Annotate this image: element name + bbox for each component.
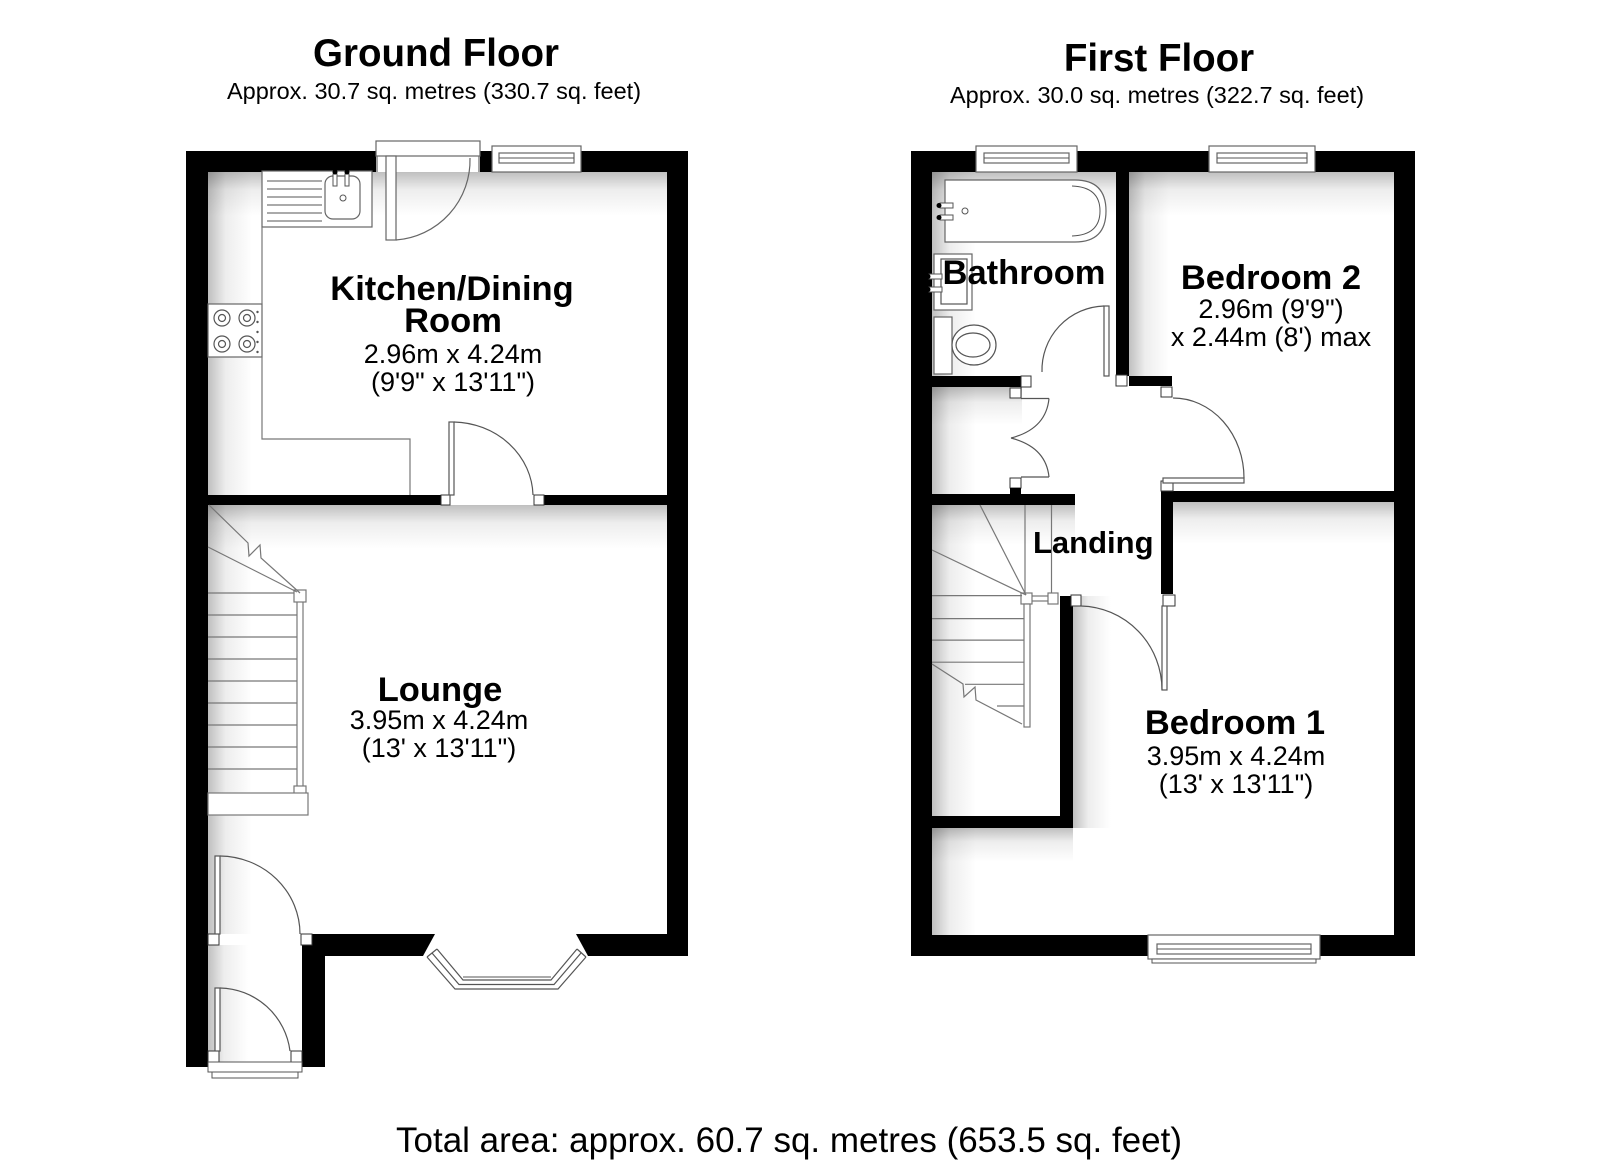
svg-text:(9'9" x 13'11"): (9'9" x 13'11") (371, 367, 535, 397)
svg-text:Total area: approx. 60.7 sq. m: Total area: approx. 60.7 sq. metres (653… (396, 1121, 1182, 1160)
svg-text:(13' x 13'11"): (13' x 13'11") (1159, 769, 1313, 799)
svg-text:3.95m x 4.24m: 3.95m x 4.24m (1147, 741, 1326, 771)
svg-text:Approx. 30.0 sq. metres (322.7: Approx. 30.0 sq. metres (322.7 sq. feet) (950, 82, 1364, 108)
svg-text:Room: Room (404, 302, 502, 340)
svg-text:Approx. 30.7 sq. metres (330.7: Approx. 30.7 sq. metres (330.7 sq. feet) (227, 78, 641, 104)
svg-text:First Floor: First Floor (1064, 37, 1254, 80)
svg-text:Ground Floor: Ground Floor (313, 32, 559, 75)
svg-text:Landing: Landing (1033, 525, 1154, 560)
svg-text:Lounge: Lounge (378, 671, 503, 709)
svg-text:Bathroom: Bathroom (943, 254, 1106, 292)
svg-text:Bedroom 2: Bedroom 2 (1181, 259, 1361, 297)
svg-text:3.95m x 4.24m: 3.95m x 4.24m (350, 705, 529, 735)
svg-text:Bedroom 1: Bedroom 1 (1145, 704, 1325, 742)
svg-text:x 2.44m (8') max: x 2.44m (8') max (1171, 322, 1372, 352)
svg-text:(13' x 13'11"): (13' x 13'11") (362, 733, 516, 763)
svg-text:2.96m (9'9"): 2.96m (9'9") (1198, 294, 1343, 324)
svg-text:2.96m x 4.24m: 2.96m x 4.24m (364, 339, 543, 369)
